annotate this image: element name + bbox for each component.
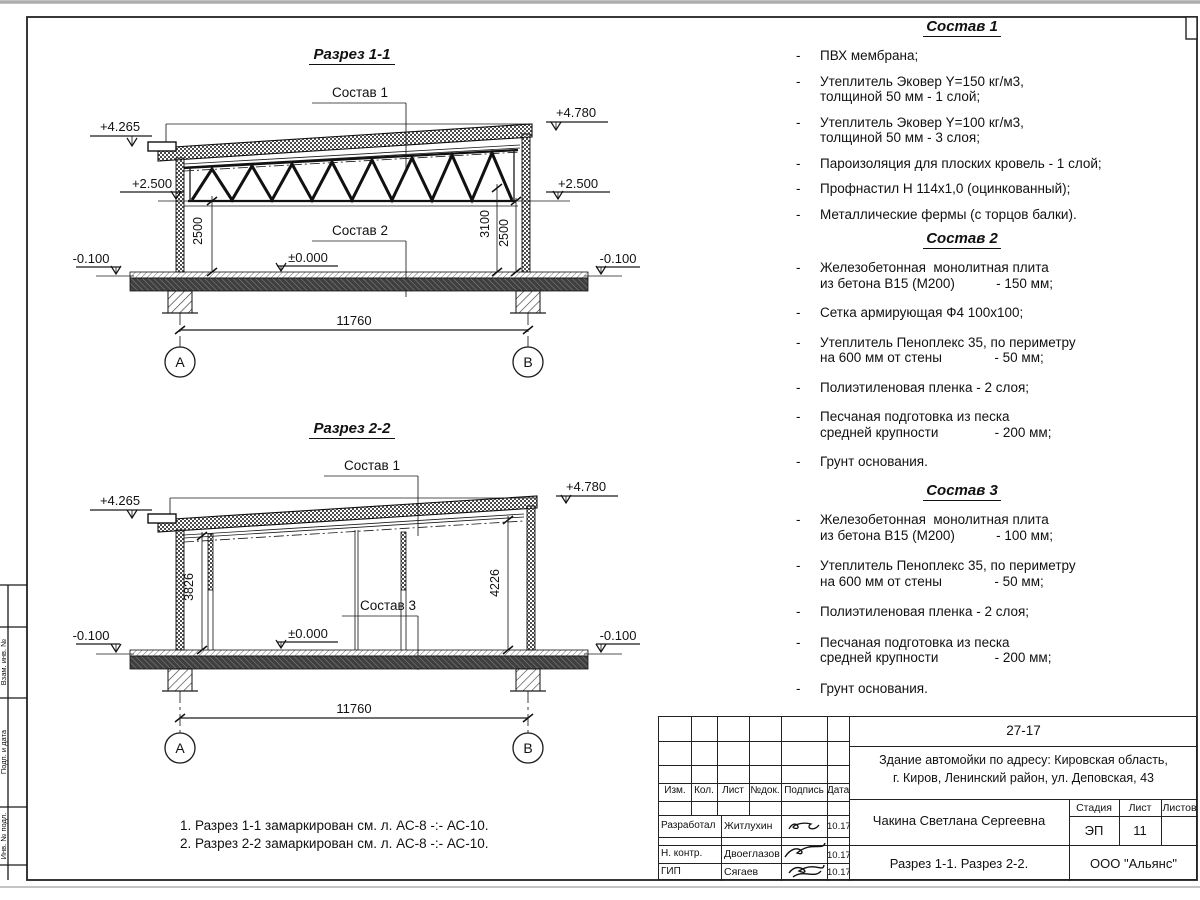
composition-list-1: Состав 1 -ПВХ мембрана; -Утеплитель Эков… — [792, 18, 1132, 232]
stage-label: Стадия — [1069, 802, 1119, 814]
callout-sostav-2: Состав 2 — [310, 223, 410, 238]
organization-name: ООО "Альянс" — [1069, 856, 1198, 871]
list-item: -Грунт основания. — [792, 681, 1132, 697]
callout-sostav-1: Состав 1 — [310, 85, 410, 100]
title-block: Изм. Кол. Лист №док. Подпись Дата Разраб… — [658, 716, 1197, 880]
item-dash: - — [792, 380, 820, 396]
list-item: -Полиэтиленовая пленка - 2 слоя; — [792, 380, 1132, 396]
author-name: Чакина Светлана Сергеевна — [849, 813, 1069, 828]
list-item: -Сетка армирующая Ф4 100х100; — [792, 305, 1132, 321]
callout-sostav-3: Состав 3 — [338, 598, 438, 613]
col-header-data: Дата — [827, 785, 849, 796]
callout-sostav-1: Состав 1 — [322, 458, 422, 473]
signature-date: 10.17 — [827, 867, 849, 878]
composition-list-3: Состав 3 -Железобетонная монолитная плит… — [792, 482, 1132, 711]
role-label: Разработал — [661, 820, 721, 831]
level-label: +4.265 — [88, 493, 152, 508]
composition-list-2: Состав 2 -Железобетонная монолитная плит… — [792, 230, 1132, 484]
list-item: -ПВХ мембрана; — [792, 48, 1132, 64]
item-dash: - — [792, 681, 820, 697]
item-dash: - — [792, 558, 820, 589]
item-dash: - — [792, 305, 820, 321]
list-item: -Песчаная подготовка из пескасредней кру… — [792, 409, 1132, 440]
list-item: -Утеплитель Пеноплекс 35, по периметруна… — [792, 558, 1132, 589]
section-2-2-linework — [76, 476, 640, 763]
col-header-izm: Изм. — [659, 785, 691, 796]
section-1-1-linework — [76, 103, 640, 377]
sheet-title: Разрез 1-1. Разрез 2-2. — [849, 856, 1069, 871]
col-header-podpis: Подпись — [781, 785, 827, 796]
axis-bubble-a: А — [165, 348, 195, 376]
axis-bubble-a: А — [165, 734, 195, 762]
level-label: +2.500 — [120, 176, 184, 191]
dimension-label: 2500 — [191, 201, 205, 261]
item-dash: - — [792, 115, 820, 146]
level-label: -0.100 — [593, 628, 643, 643]
person-name: Житлухин — [724, 820, 780, 832]
note-line-2: 2. Разрез 2-2 замаркирован см. л. АС-8 -… — [180, 836, 489, 851]
role-label: ГИП — [661, 866, 721, 877]
level-label: -0.100 — [593, 251, 643, 266]
dimension-label: 11760 — [324, 313, 384, 328]
level-label: -0.100 — [66, 251, 116, 266]
section-1-1-title: Разрез 1-1 — [252, 46, 452, 63]
person-name: Двоеглазов — [724, 848, 782, 860]
dimension-label: 11760 — [324, 701, 384, 716]
axis-bubble-b: В — [513, 348, 543, 376]
col-header-ndoc: №док. — [749, 785, 781, 796]
dimension-label: 2500 — [497, 203, 511, 263]
item-dash: - — [792, 181, 820, 197]
list-title: Состав 3 — [792, 482, 1132, 499]
item-dash: - — [792, 409, 820, 440]
list-item: -Железобетонная монолитная плитаиз бетон… — [792, 260, 1132, 291]
list-item: -Профнастил Н 114х1,0 (оцинкованный); — [792, 181, 1132, 197]
list-item: -Металлические фермы (с торцов балки). — [792, 207, 1132, 223]
sheet-label: Лист — [1119, 802, 1161, 814]
side-strip-label: Взам. инв. № — [0, 622, 9, 702]
list-item: -Железобетонная монолитная плитаиз бетон… — [792, 512, 1132, 543]
object-address-line1: Здание автомойки по адресу: Кировская об… — [849, 753, 1198, 767]
list-item: -Утеплитель Эковер Y=150 кг/м3,толщиной … — [792, 74, 1132, 105]
signature-strokes — [781, 813, 827, 881]
list-item: -Грунт основания. — [792, 454, 1132, 470]
sheet-number: 11 — [1119, 823, 1161, 838]
stage-value: ЭП — [1069, 823, 1119, 838]
list-item: -Утеплитель Эковер Y=100 кг/м3,толщиной … — [792, 115, 1132, 146]
item-dash: - — [792, 454, 820, 470]
level-label: -0.100 — [66, 628, 116, 643]
item-dash: - — [792, 335, 820, 366]
role-label: Н. контр. — [661, 848, 721, 859]
level-label: +4.780 — [544, 105, 608, 120]
list-item: -Утеплитель Пеноплекс 35, по периметруна… — [792, 335, 1132, 366]
list-item: -Песчаная подготовка из пескасредней кру… — [792, 635, 1132, 666]
list-item: -Полиэтиленовая пленка - 2 слоя; — [792, 604, 1132, 620]
object-address-line2: г. Киров, Ленинский район, ул. Деповская… — [849, 771, 1198, 785]
list-title: Состав 1 — [792, 18, 1132, 35]
item-dash: - — [792, 156, 820, 172]
dimension-label: 4226 — [488, 553, 502, 613]
col-header-kol: Кол. — [691, 785, 717, 796]
axis-bubble-b: В — [513, 734, 543, 762]
item-dash: - — [792, 512, 820, 543]
dimension-label: 3100 — [478, 194, 492, 254]
signature-date: 10.17 — [827, 821, 849, 832]
sheets-label: Листов — [1161, 802, 1198, 814]
list-title: Состав 2 — [792, 230, 1132, 247]
item-dash: - — [792, 207, 820, 223]
drawing-sheet: .ln{stroke:#1a1a1a;stroke-width:1.3;fill… — [0, 0, 1200, 900]
item-dash: - — [792, 604, 820, 620]
item-dash: - — [792, 74, 820, 105]
section-2-2-title: Разрез 2-2 — [252, 420, 452, 437]
dimension-label: 3826 — [182, 557, 196, 617]
col-header-list: Лист — [717, 785, 749, 796]
side-strip-label: Инв. № подл. — [0, 796, 9, 876]
list-item: -Пароизоляция для плоских кровель - 1 сл… — [792, 156, 1132, 172]
level-label: ±0.000 — [276, 626, 340, 641]
item-dash: - — [792, 48, 820, 64]
signature-date: 10.17 — [827, 850, 849, 861]
level-label: +2.500 — [546, 176, 610, 191]
level-label: +4.265 — [88, 119, 152, 134]
note-line-1: 1. Разрез 1-1 замаркирован см. л. АС-8 -… — [180, 818, 489, 833]
item-dash: - — [792, 635, 820, 666]
project-code: 27-17 — [849, 723, 1198, 738]
item-dash: - — [792, 260, 820, 291]
level-label: +4.780 — [554, 479, 618, 494]
person-name: Сягаев — [724, 866, 782, 878]
side-strip-label: Подп. и дата — [0, 712, 9, 792]
level-label: ±0.000 — [276, 250, 340, 265]
